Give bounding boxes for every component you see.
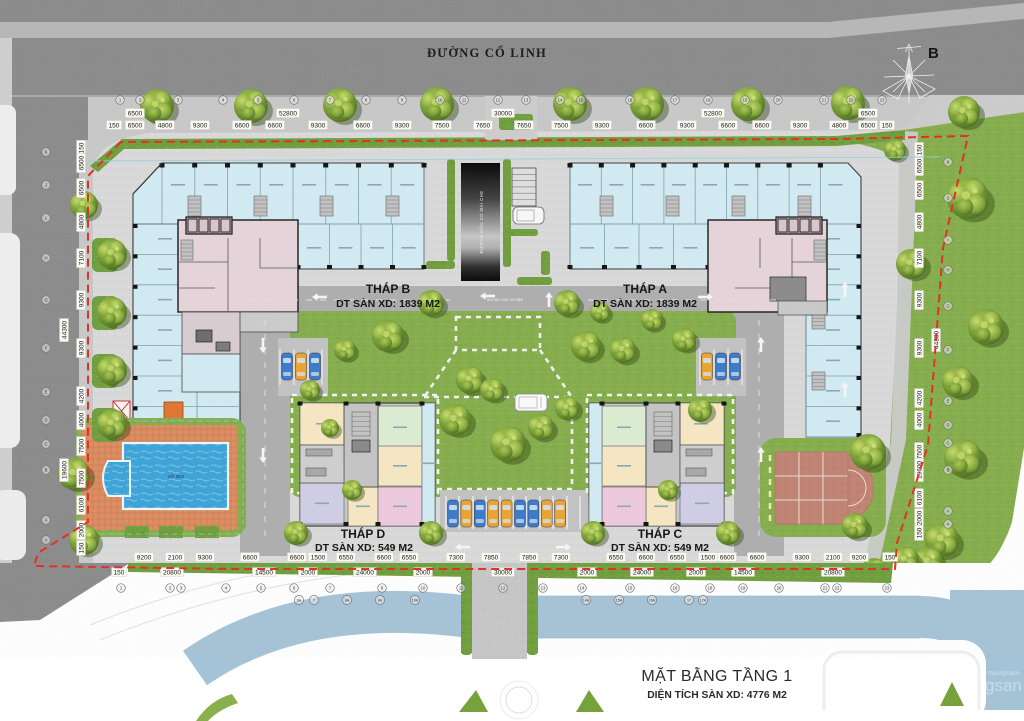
svg-text:9A: 9A: [378, 598, 383, 602]
svg-text:thuonghiem: thuonghiem: [988, 671, 1019, 677]
svg-text:MẶT BẰNG TẦNG 1: MẶT BẰNG TẦNG 1: [641, 666, 792, 685]
svg-text:16A: 16A: [649, 598, 656, 602]
svg-text:10A: 10A: [412, 598, 419, 602]
svg-text:6A: 6A: [297, 598, 302, 602]
svg-text:17A: 17A: [700, 598, 707, 602]
svg-text:8A: 8A: [345, 598, 350, 602]
svg-text:7: 7: [313, 598, 315, 602]
svg-text:gsan: gsan: [985, 676, 1022, 695]
svg-text:15A: 15A: [616, 598, 623, 602]
svg-text:DIỆN TÍCH SÀN XD: 4776 M2: DIỆN TÍCH SÀN XD: 4776 M2: [647, 688, 787, 701]
svg-text:14A: 14A: [583, 598, 590, 602]
svg-text:17: 17: [687, 598, 691, 602]
